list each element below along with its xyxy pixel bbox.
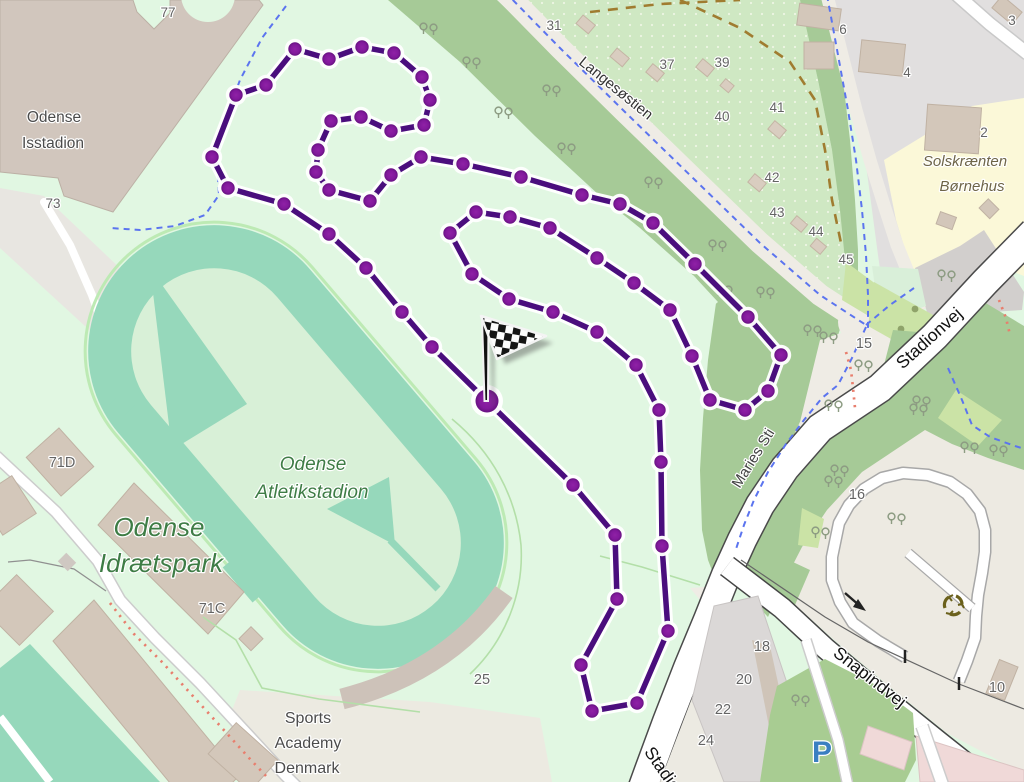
svg-text:20: 20 bbox=[736, 672, 752, 688]
svg-text:Academy: Academy bbox=[275, 735, 342, 752]
svg-text:44: 44 bbox=[808, 224, 824, 239]
svg-text:Odense: Odense bbox=[280, 454, 347, 475]
svg-text:Sports: Sports bbox=[285, 710, 331, 727]
svg-text:24: 24 bbox=[698, 733, 714, 749]
svg-text:P: P bbox=[812, 736, 832, 769]
svg-text:42: 42 bbox=[764, 170, 779, 185]
svg-text:40: 40 bbox=[714, 109, 729, 124]
svg-text:16: 16 bbox=[849, 487, 865, 503]
svg-text:31: 31 bbox=[546, 18, 561, 33]
svg-text:Solskrænten: Solskrænten bbox=[923, 153, 1007, 170]
svg-text:37: 37 bbox=[659, 57, 674, 72]
svg-text:6: 6 bbox=[839, 22, 847, 37]
svg-text:Odense: Odense bbox=[27, 109, 81, 126]
svg-text:Atletikstadion: Atletikstadion bbox=[254, 482, 368, 503]
svg-text:41: 41 bbox=[769, 100, 784, 115]
svg-text:Idrætspark: Idrætspark bbox=[99, 548, 225, 578]
svg-text:25: 25 bbox=[474, 672, 490, 688]
svg-text:18: 18 bbox=[754, 639, 770, 655]
svg-text:Isstadion: Isstadion bbox=[22, 135, 84, 152]
svg-text:22: 22 bbox=[715, 702, 731, 718]
svg-text:Odense: Odense bbox=[113, 512, 204, 542]
svg-text:45: 45 bbox=[838, 252, 853, 267]
svg-text:71C: 71C bbox=[199, 601, 226, 617]
svg-text:15: 15 bbox=[856, 336, 872, 352]
svg-text:39: 39 bbox=[714, 55, 729, 70]
svg-text:77: 77 bbox=[160, 5, 175, 20]
svg-text:43: 43 bbox=[769, 205, 784, 220]
svg-text:2: 2 bbox=[980, 125, 988, 140]
svg-text:73: 73 bbox=[45, 196, 60, 211]
svg-text:10: 10 bbox=[989, 680, 1005, 696]
svg-text:4: 4 bbox=[903, 65, 911, 80]
svg-text:71D: 71D bbox=[49, 455, 76, 471]
svg-text:Denmark: Denmark bbox=[275, 760, 341, 777]
svg-text:3: 3 bbox=[1008, 13, 1016, 28]
svg-text:Børnehus: Børnehus bbox=[939, 178, 1005, 195]
